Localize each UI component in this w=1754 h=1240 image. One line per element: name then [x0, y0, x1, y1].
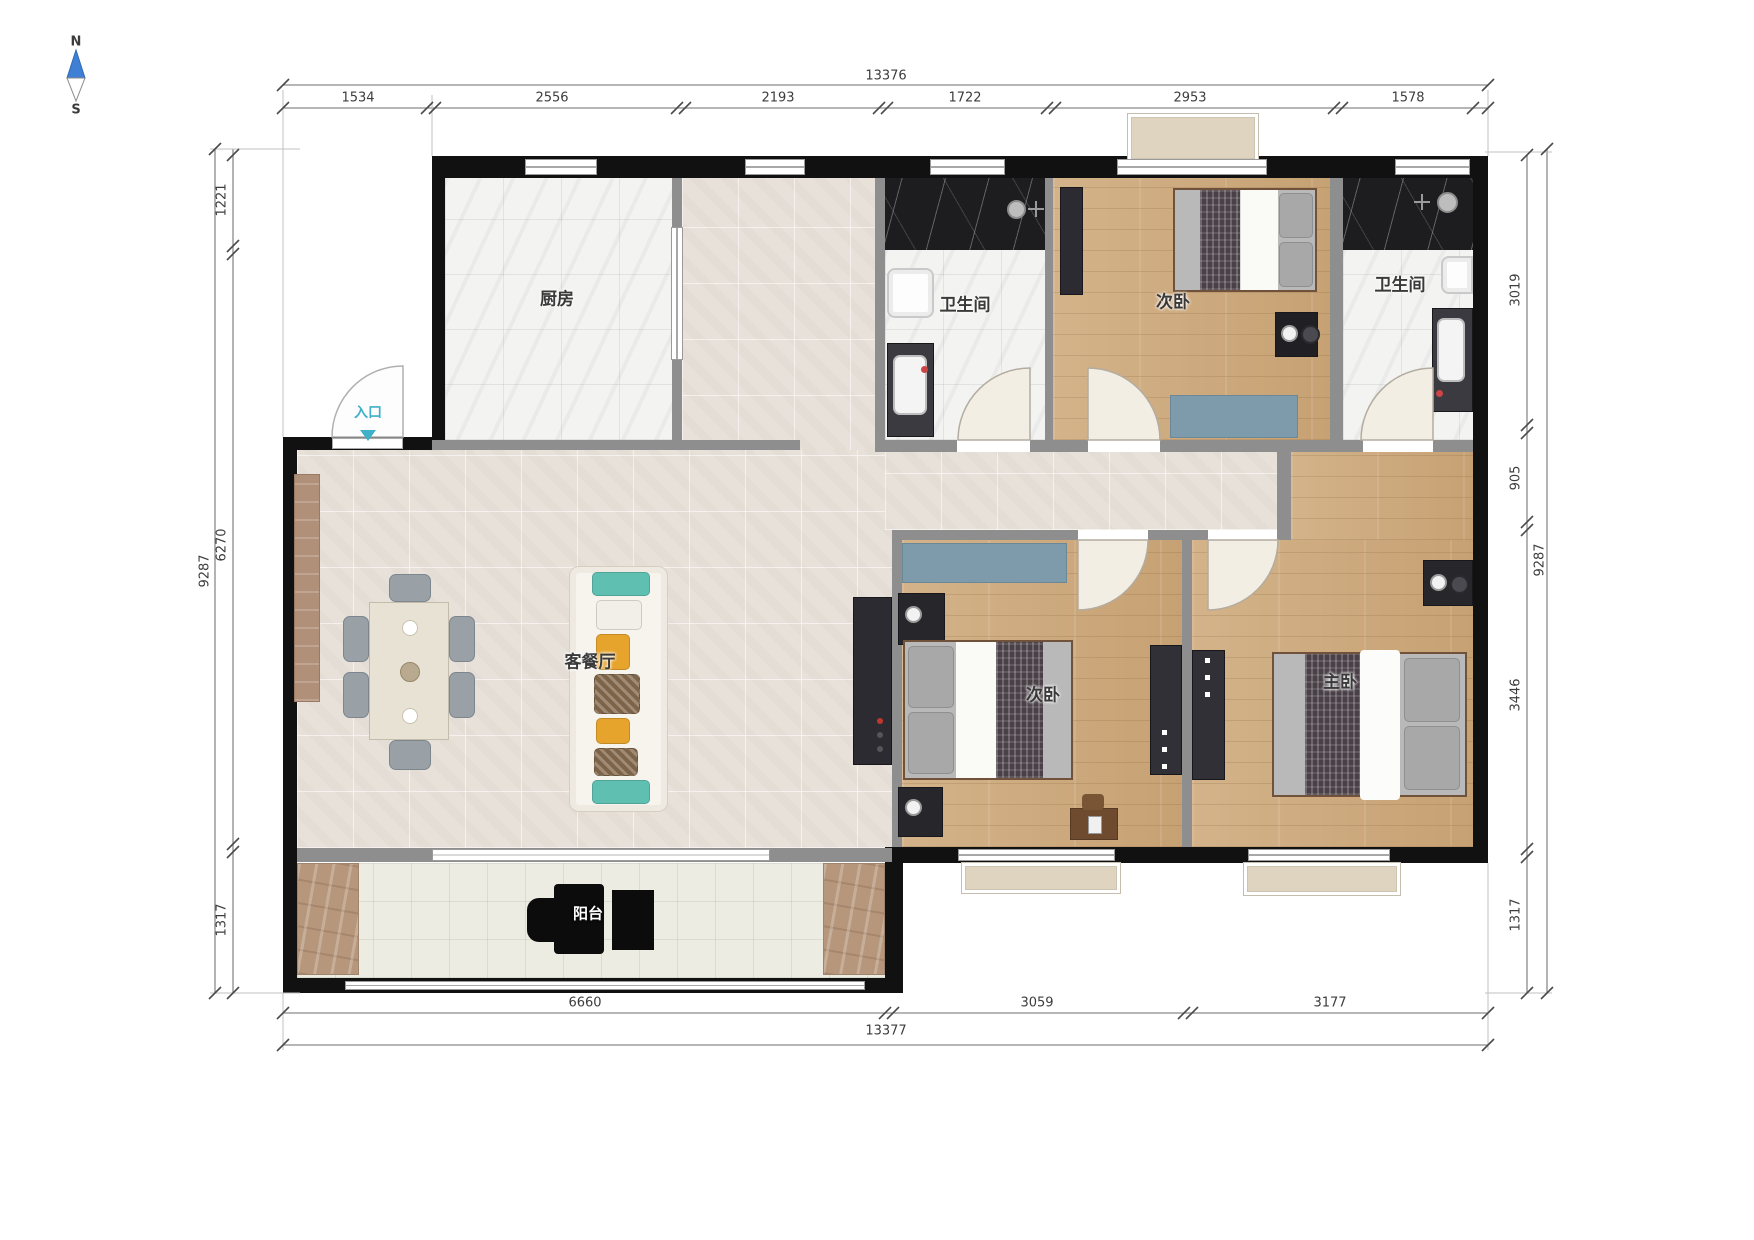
- kitchen-label: 厨房: [540, 285, 574, 310]
- dim-bottom-seg2: 3059: [1020, 996, 1053, 1011]
- compass-north-label: N: [71, 35, 82, 50]
- master-label: 主卧: [1323, 668, 1357, 693]
- dim-bottom-total: 13377: [865, 1024, 906, 1039]
- dim-top-total: 13376: [865, 69, 906, 84]
- extension-lines: [210, 90, 1552, 1050]
- bedroommid-door-arc: [1078, 540, 1148, 610]
- dim-top-seg5: 2953: [1173, 91, 1206, 106]
- bathroom2-label: 卫生间: [1375, 271, 1426, 296]
- compass-icon: [67, 50, 85, 101]
- entrance-label: 入口: [354, 402, 382, 422]
- shower2-handle-icon: [1414, 194, 1430, 210]
- dimension-ticks: [209, 79, 1553, 1051]
- bedroomtop-door-arc: [1088, 368, 1160, 440]
- dim-bottom-seg3: 3177: [1313, 996, 1346, 1011]
- overlay-graphics: [0, 0, 1754, 1240]
- balcony-label: 阳台: [573, 903, 603, 924]
- dim-top-seg1: 1534: [341, 91, 374, 106]
- living-label: 客餐厅: [565, 648, 616, 673]
- dim-top-seg6: 1578: [1391, 91, 1424, 106]
- dim-top-seg4: 1722: [948, 91, 981, 106]
- entrance-arrow-icon: [360, 430, 376, 441]
- dim-right-seg1: 3019: [1509, 273, 1524, 306]
- master-door-arc: [1208, 540, 1278, 610]
- shower1-handle-icon: [1028, 201, 1044, 217]
- dim-top-seg3: 2193: [761, 91, 794, 106]
- bathroom2-door-arc: [1361, 368, 1433, 440]
- bedroomtop-label: 次卧: [1156, 288, 1190, 313]
- dimension-lines: [215, 85, 1547, 1045]
- dim-right-seg2: 905: [1509, 466, 1524, 491]
- bedroommid-label: 次卧: [1026, 681, 1060, 706]
- dim-left-seg2: 6270: [215, 528, 230, 561]
- compass-south-label: S: [71, 103, 80, 118]
- bathroom1-label: 卫生间: [940, 291, 991, 316]
- dim-bottom-seg1: 6660: [568, 996, 601, 1011]
- dim-left-total: 9287: [198, 554, 213, 587]
- floorplan-canvas: N S 厨房 卫生间 次卧 卫生间 客餐厅 次卧 主卧 阳台 入口 13376 …: [0, 0, 1754, 1240]
- bathroom1-door-arc: [958, 368, 1030, 440]
- dim-left-seg3: 1317: [215, 903, 230, 936]
- dim-right-seg3: 3446: [1509, 678, 1524, 711]
- dim-right-total: 9287: [1533, 543, 1548, 576]
- dim-top-seg2: 2556: [535, 91, 568, 106]
- dim-right-seg4: 1317: [1509, 898, 1524, 931]
- dim-left-seg1: 1221: [215, 183, 230, 216]
